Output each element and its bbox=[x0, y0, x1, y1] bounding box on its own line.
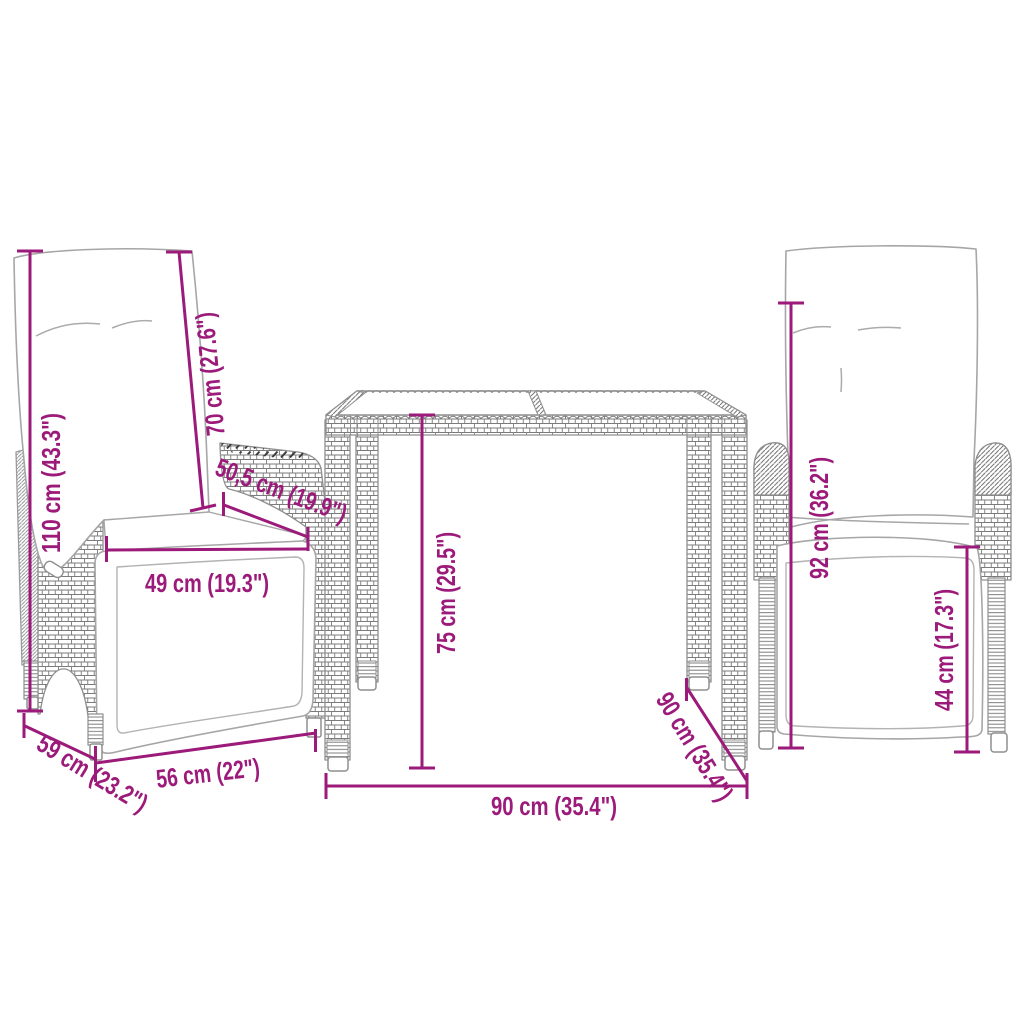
svg-text:110 cm (43.3"): 110 cm (43.3") bbox=[38, 413, 66, 553]
svg-text:90 cm (35.4"): 90 cm (35.4") bbox=[491, 793, 617, 821]
svg-text:49 cm (19.3"): 49 cm (19.3") bbox=[145, 570, 269, 598]
svg-text:44 cm (17.3"): 44 cm (17.3") bbox=[931, 589, 959, 711]
svg-text:75 cm (29.5"): 75 cm (29.5") bbox=[433, 532, 461, 654]
svg-text:92 cm (36.2"): 92 cm (36.2") bbox=[806, 457, 834, 579]
